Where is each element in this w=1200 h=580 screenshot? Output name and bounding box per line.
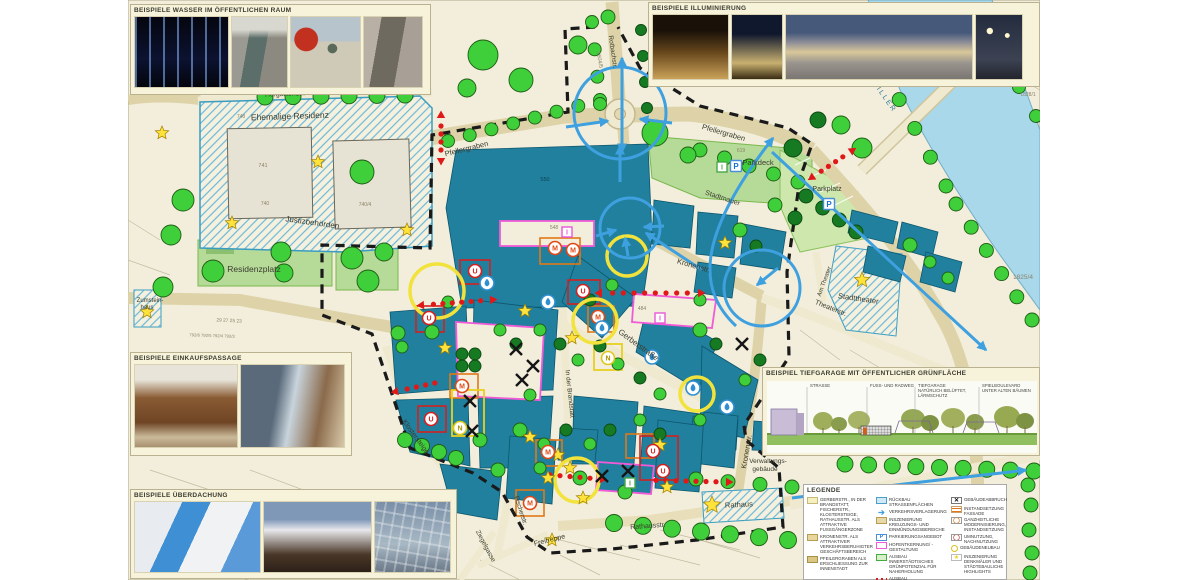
path-dot-icon <box>438 131 443 136</box>
legend-item-label: GERBERSTR., IN DER BRANDSTATT, FISCHERST… <box>820 497 873 532</box>
measure-marker-letter: M <box>459 384 465 391</box>
legend-item: PPARKIERUNGSANGEBOT <box>876 534 948 541</box>
panel-garage-section: BEISPIEL TIEFGARAGE MIT ÖFFENTLICHER GRÜ… <box>762 367 1040 456</box>
legend-item-label: INSTANDSETZUNG FASSADE <box>964 506 1004 516</box>
tree-icon <box>202 260 224 282</box>
path-dot-icon <box>438 123 443 128</box>
tree-icon <box>350 160 374 184</box>
path-dot-icon <box>577 475 582 480</box>
legend-swatch-pink-icon <box>876 542 887 549</box>
measure-marker-letter: U <box>472 269 477 276</box>
map-label: 619 <box>737 148 746 154</box>
path-dot-icon <box>414 384 419 389</box>
legend-swatch-y1-icon <box>807 497 818 504</box>
tree-icon <box>1021 478 1035 492</box>
path-dot-icon <box>840 154 845 159</box>
legend-item-label: PFEILERGRABEN ALS ERSCHLIESSUNG ZUR INNE… <box>820 556 873 571</box>
tree-icon <box>753 477 767 491</box>
legend-item: INSZENIERUNG KREUZUNGS- UND EINMÜNDUNGSB… <box>876 517 948 532</box>
map-label: Parkplatz <box>812 186 842 193</box>
legend-swatch-star-icon: ★ <box>951 554 962 561</box>
tree-icon <box>442 135 455 148</box>
legend-item: PFEILERGRABEN ALS ERSCHLIESSUNG ZUR INNE… <box>807 556 873 571</box>
glass-roof-photo <box>374 501 451 573</box>
tree-icon <box>784 139 802 157</box>
tree-icon <box>161 225 181 245</box>
path-dot-icon <box>469 299 474 304</box>
info-square-letter: I <box>659 316 661 323</box>
path-dot-icon <box>423 382 428 387</box>
tree-icon <box>1023 566 1037 580</box>
tree-icon <box>485 123 498 136</box>
legend-item: AUSBAU WEGEVERBINDUNGEN <box>876 576 948 580</box>
path-dot-icon <box>567 474 572 479</box>
map-label: 740 <box>261 201 270 207</box>
tree-icon <box>391 326 405 340</box>
section-callout: FUSS- UND RADWEG <box>870 384 922 389</box>
path-dot-icon <box>587 476 592 481</box>
tree-icon <box>357 270 379 292</box>
panel-water-examples: BEISPIELE WASSER IM ÖFFENTLICHEN RAUM <box>130 4 431 95</box>
tree-icon <box>1025 546 1039 560</box>
measure-marker-letter: U <box>426 316 431 323</box>
tree-icon <box>153 277 173 297</box>
tree-icon <box>606 279 618 291</box>
map-label: Verwaltungs- <box>749 458 787 465</box>
tree-icon <box>584 438 596 450</box>
path-dot-icon <box>642 290 647 295</box>
roundabout-island <box>615 109 626 120</box>
tree-icon <box>271 242 291 262</box>
path-dot-icon <box>459 300 464 305</box>
tree-icon <box>507 117 520 130</box>
tree-icon <box>908 121 922 135</box>
info-square-letter: I <box>629 481 631 488</box>
legend-item-label: UMNUTZUNG, NACHNUTZUNG <box>964 534 1003 544</box>
tree-icon <box>560 424 572 436</box>
lamps-night-photo <box>975 14 1023 80</box>
tree-icon <box>780 532 797 549</box>
measure-marker-letter: U <box>650 449 655 456</box>
path-dot-icon <box>819 169 824 174</box>
arcade-glass-photo <box>240 364 345 448</box>
legend-item-label: INSZENIERUNG KREUZUNGS- UND EINMÜNDUNGSB… <box>889 517 948 532</box>
legend-item: ✕GEBÄUDEABBRUCH <box>951 497 1003 504</box>
legend-item: GEBÄUDENEUBAU <box>951 545 1003 552</box>
panel-arcade-examples: BEISPIELE EINKAUFSPASSAGE <box>130 352 352 456</box>
tree-icon <box>733 223 747 237</box>
path-dot-icon <box>431 302 436 307</box>
tree-icon <box>680 147 696 163</box>
tree-icon <box>832 116 850 134</box>
map-label: gebäude <box>752 466 778 473</box>
map-label: 1828/1 <box>1020 92 1036 98</box>
tree-icon <box>172 189 194 211</box>
tree-icon <box>710 338 722 350</box>
path-dot-icon <box>693 479 698 484</box>
tree-icon <box>693 323 707 337</box>
legend-swatch-x-icon: ✕ <box>951 497 962 504</box>
tree-icon <box>861 457 877 473</box>
tree-icon <box>341 247 363 269</box>
path-dot-icon <box>438 139 443 144</box>
tree-icon <box>837 456 853 472</box>
plaza-dusk-photo <box>785 14 973 80</box>
tree-icon <box>449 451 464 466</box>
measure-marker-letter: U <box>428 417 433 424</box>
legend-item: RÜCKBAU STRASSENFLÄCHEN <box>876 497 948 507</box>
parking-letter: P <box>733 162 739 171</box>
legend-title: LEGENDE <box>807 487 1003 495</box>
map-label: Parkdeck <box>742 158 774 167</box>
path-dot-icon <box>432 380 437 385</box>
tree-icon <box>534 462 546 474</box>
path-dot-icon <box>440 301 445 306</box>
section-callout: STRASSE <box>810 384 862 389</box>
legend-item-label: RÜCKBAU STRASSENFLÄCHEN <box>889 497 948 507</box>
path-dot-icon <box>610 290 615 295</box>
canopy-photo-strip <box>134 501 453 573</box>
tree-icon <box>799 189 813 203</box>
tree-icon <box>569 36 587 54</box>
sails-photo <box>263 501 372 573</box>
tree-icon <box>396 341 408 353</box>
tree-icon <box>594 98 607 111</box>
legend-item-label: HOFENTKERNUNG/ -GESTALTUNG <box>889 542 948 552</box>
legend-item-label: KRONENSTR. ALS ATTRAKTIVER VERKEHRSBERUH… <box>820 534 873 554</box>
path-dot-icon <box>674 290 679 295</box>
tree-icon <box>1030 110 1043 123</box>
tree-icon <box>458 79 476 97</box>
panel-garage-title: BEISPIEL TIEFGARAGE MIT ÖFFENTLICHER GRÜ… <box>766 370 1036 378</box>
tree-icon <box>903 238 917 252</box>
tree-icon <box>456 348 468 360</box>
tree-icon <box>923 150 937 164</box>
measure-marker-letter: M <box>570 248 576 255</box>
tree-icon <box>1026 463 1042 479</box>
plaza-umbrellas-photo <box>290 16 361 88</box>
tree-icon <box>767 167 781 181</box>
tree-icon <box>979 243 993 257</box>
tree-icon <box>654 388 666 400</box>
arcade-warm-photo <box>134 364 238 448</box>
tree-icon <box>601 10 615 24</box>
map-label: Residenzplatz <box>227 264 280 274</box>
tree-icon <box>606 515 623 532</box>
plan-canvas: MMMMMMUUUUUUNNIIIIPP Hofgartenstr.Ehemal… <box>0 0 1200 580</box>
tree-icon <box>810 112 826 128</box>
legend-item-label: GANZHEITLICHE MODERNISIERUNG, INSTANDSET… <box>964 517 1006 532</box>
tree-icon <box>739 374 751 386</box>
water-rill-photo <box>231 16 288 88</box>
section-callout: TIEFGARAGE NATÜRLICH BELÜFTET, LÄRMSCHUT… <box>918 384 970 399</box>
legend-item-label: GEBÄUDENEUBAU <box>960 545 1000 550</box>
gable-night-photo <box>731 14 783 80</box>
tree-icon <box>785 480 799 494</box>
map-label: 484 <box>638 306 647 312</box>
tree-icon <box>751 529 768 546</box>
legend-item: ◯GANZHEITLICHE MODERNISIERUNG, INSTANDSE… <box>951 517 1003 532</box>
legend-item-label: VERKEHRSVERLAGERUNG <box>889 509 947 514</box>
traffic-shift-arrow <box>644 226 664 227</box>
legend-swatch-p-icon: P <box>876 534 887 541</box>
tree-icon <box>456 360 468 372</box>
tree-icon <box>638 51 649 62</box>
legend-swatch-circo-icon: ◯ <box>951 517 962 524</box>
measure-marker-letter: M <box>545 450 551 457</box>
tree-icon <box>554 338 566 350</box>
tree-icon <box>636 25 647 36</box>
map-label: Zumstein- <box>137 298 164 304</box>
legend-item-label: AUSBAU WEGEVERBINDUNGEN <box>889 576 948 580</box>
tree-icon <box>932 460 948 476</box>
map-label: 748 <box>237 114 246 120</box>
panel-water-title: BEISPIELE WASSER IM ÖFFENTLICHEN RAUM <box>134 7 427 15</box>
legend-swatch-circg-icon: ◯ <box>951 534 962 541</box>
measure-marker-letter: N <box>457 426 462 433</box>
path-dot-icon <box>631 290 636 295</box>
street-channel-photo <box>363 16 423 88</box>
legend-item: INSTANDSETZUNG FASSADE <box>951 506 1003 516</box>
tree-icon <box>942 272 954 284</box>
legend-item: GERBERSTR., IN DER BRANDSTATT, FISCHERST… <box>807 497 873 532</box>
water-photo-strip <box>134 16 427 88</box>
tree-icon <box>1010 290 1024 304</box>
legend-swatch-y3-icon <box>807 556 818 563</box>
legend-item: AUSBAU INNERSTÄDTISCHES GRÜNPOTENZIAL FÜ… <box>876 554 948 574</box>
measure-marker-letter: M <box>527 501 533 508</box>
tree-icon <box>550 105 563 118</box>
tree-icon <box>693 523 710 540</box>
umbrellas-sky-photo <box>134 501 261 573</box>
section-building <box>771 409 797 435</box>
section-callout: SPIELBOULEVARD UNTER ALTEN BÄUMEN <box>982 384 1034 394</box>
panel-illumination-examples: BEISPIELE ILLUMINIERUNG <box>648 2 1040 87</box>
measure-marker-letter: N <box>605 356 610 363</box>
path-dot-icon <box>450 300 455 305</box>
legend-swatch-green-icon <box>876 554 887 561</box>
path-dot-icon <box>557 473 562 478</box>
path-dot-icon <box>478 298 483 303</box>
tree-icon <box>572 354 584 366</box>
tree-icon <box>1022 523 1036 537</box>
legend-panel: LEGENDE GERBERSTR., IN DER BRANDSTATT, F… <box>803 484 1007 580</box>
tree-icon <box>491 463 505 477</box>
legend-swatch-tan-icon <box>876 517 887 524</box>
tree-icon <box>642 103 653 114</box>
fountain-night-photo <box>134 16 229 88</box>
path-dot-icon <box>653 478 658 483</box>
path-dot-icon <box>685 290 690 295</box>
tree-icon <box>664 520 681 537</box>
map-label: 740/4 <box>359 202 372 208</box>
tree-icon <box>1024 498 1038 512</box>
tree-icon <box>432 445 447 460</box>
tree-icon <box>375 243 393 261</box>
legend-item: ◯UMNUTZUNG, NACHNUTZUNG <box>951 534 1003 544</box>
measure-marker-letter: U <box>660 469 665 476</box>
tree-icon <box>634 414 646 426</box>
legend-swatch-olines-icon <box>951 506 962 513</box>
legend-swatch-circy-icon <box>951 545 958 552</box>
panel-canopy-examples: BEISPIELE ÜBERDACHUNG <box>130 489 457 579</box>
map-label: Rathaus <box>725 499 754 509</box>
tree-icon <box>995 267 1009 281</box>
legend-item: ➔VERKEHRSVERLAGERUNG <box>876 509 948 516</box>
tree-icon <box>634 372 646 384</box>
tree-icon <box>768 198 782 212</box>
path-dot-icon <box>663 290 668 295</box>
path-dot-icon <box>653 290 658 295</box>
residenz-building <box>227 127 313 218</box>
tree-icon <box>586 16 599 29</box>
tree-icon <box>964 220 978 234</box>
tree-icon <box>908 459 924 475</box>
legend-item-label: PARKIERUNGSANGEBOT <box>889 534 942 539</box>
legend-item: KRONENSTR. ALS ATTRAKTIVER VERKEHRSBERUH… <box>807 534 873 554</box>
measure-marker-letter: M <box>552 246 558 253</box>
legend-item-label: GEBÄUDEABBRUCH <box>964 497 1007 502</box>
path-dot-icon <box>833 159 838 164</box>
measure-marker-letter: U <box>580 289 585 296</box>
tree-icon <box>754 354 766 366</box>
map-label: 741 <box>258 163 267 169</box>
tree-icon <box>939 179 953 193</box>
tree-icon <box>884 458 900 474</box>
panel-canopy-title: BEISPIELE ÜBERDACHUNG <box>134 492 453 500</box>
path-dot-icon <box>673 478 678 483</box>
tree-icon <box>949 197 963 211</box>
tree-icon <box>955 460 971 476</box>
tree-icon <box>1025 313 1039 327</box>
tree-icon <box>524 389 536 401</box>
panel-arcade-title: BEISPIELE EINKAUFSPASSAGE <box>134 355 348 363</box>
map-label: 1825/4 <box>1013 274 1033 281</box>
legend-swatch-bluesq-icon <box>876 497 887 504</box>
tree-icon <box>469 348 481 360</box>
tree-icon <box>463 129 476 142</box>
tree-icon <box>604 424 616 436</box>
tree-icon <box>468 40 498 70</box>
legend-item: HOFENTKERNUNG/ -GESTALTUNG <box>876 542 948 552</box>
tree-icon <box>469 360 481 372</box>
legend-item: ★INSZENIERUNG DENKMÄLER UND STÄDTEBAULIC… <box>951 554 1003 574</box>
path-dot-icon <box>683 478 688 483</box>
legend-swatch-y2-icon <box>807 534 818 541</box>
legend-swatch-arrow-icon: ➔ <box>876 509 887 516</box>
map-label: 550 <box>540 177 549 183</box>
path-dot-icon <box>405 386 410 391</box>
tree-icon <box>722 526 739 543</box>
legend-item-label: AUSBAU INNERSTÄDTISCHES GRÜNPOTENZIAL FÜ… <box>889 554 948 574</box>
tree-icon <box>694 414 706 426</box>
wall-night-photo <box>652 14 729 80</box>
path-dot-icon <box>826 164 831 169</box>
tree-icon <box>494 324 506 336</box>
path-dot-icon <box>621 290 626 295</box>
path-dot-icon <box>703 479 708 484</box>
tree-icon <box>534 324 546 336</box>
tree-icon <box>425 325 439 339</box>
panel-illumination-title: BEISPIELE ILLUMINIERUNG <box>652 5 1036 13</box>
info-square-letter: I <box>721 165 723 172</box>
tree-icon <box>924 256 936 268</box>
info-square-letter: I <box>566 230 568 237</box>
map-label: haus <box>140 305 153 311</box>
tree-icon <box>509 68 533 92</box>
justiz-building <box>333 139 411 229</box>
path-dot-icon <box>713 479 718 484</box>
illumination-photo-strip <box>652 14 1036 80</box>
tree-icon <box>528 111 541 124</box>
legend-columns: GERBERSTR., IN DER BRANDSTATT, FISCHERST… <box>807 497 1003 580</box>
tree-icon <box>788 211 802 225</box>
legend-item-label: INSZENIERUNG DENKMÄLER UND STÄDTEBAULICH… <box>964 554 1003 574</box>
map-label: 548 <box>550 225 559 231</box>
parking-letter: P <box>826 200 832 209</box>
arcade-photo-strip <box>134 364 348 448</box>
